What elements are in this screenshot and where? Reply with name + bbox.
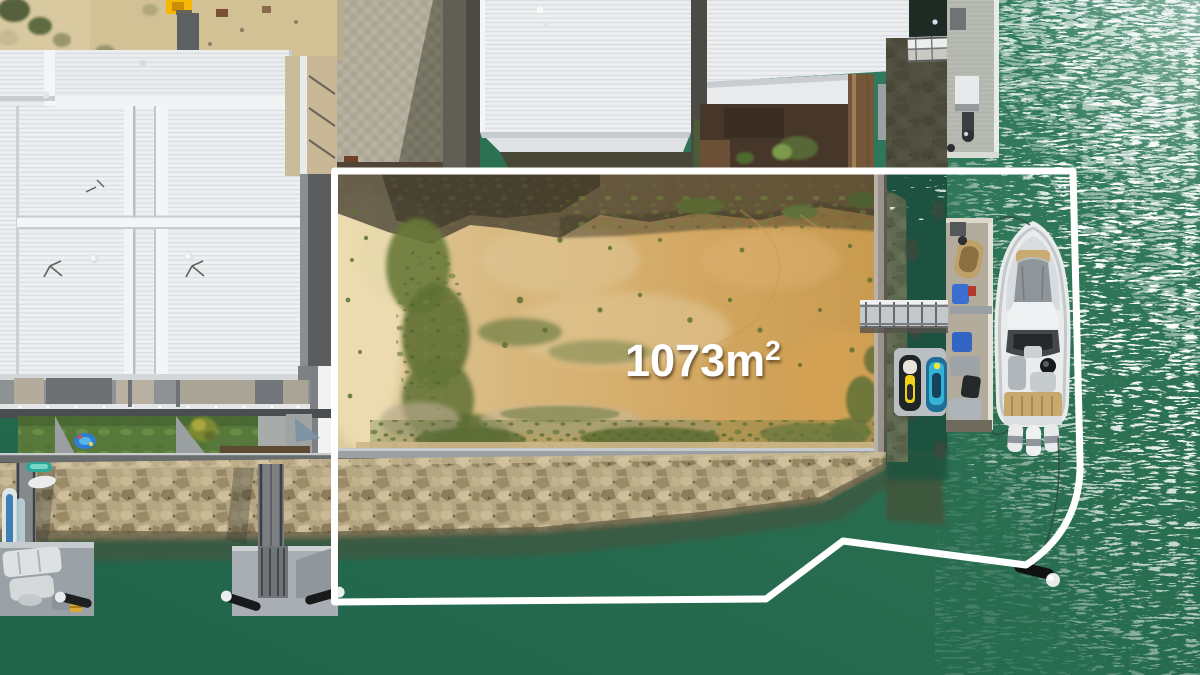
svg-text:1073m2: 1073m2 [625, 335, 781, 386]
